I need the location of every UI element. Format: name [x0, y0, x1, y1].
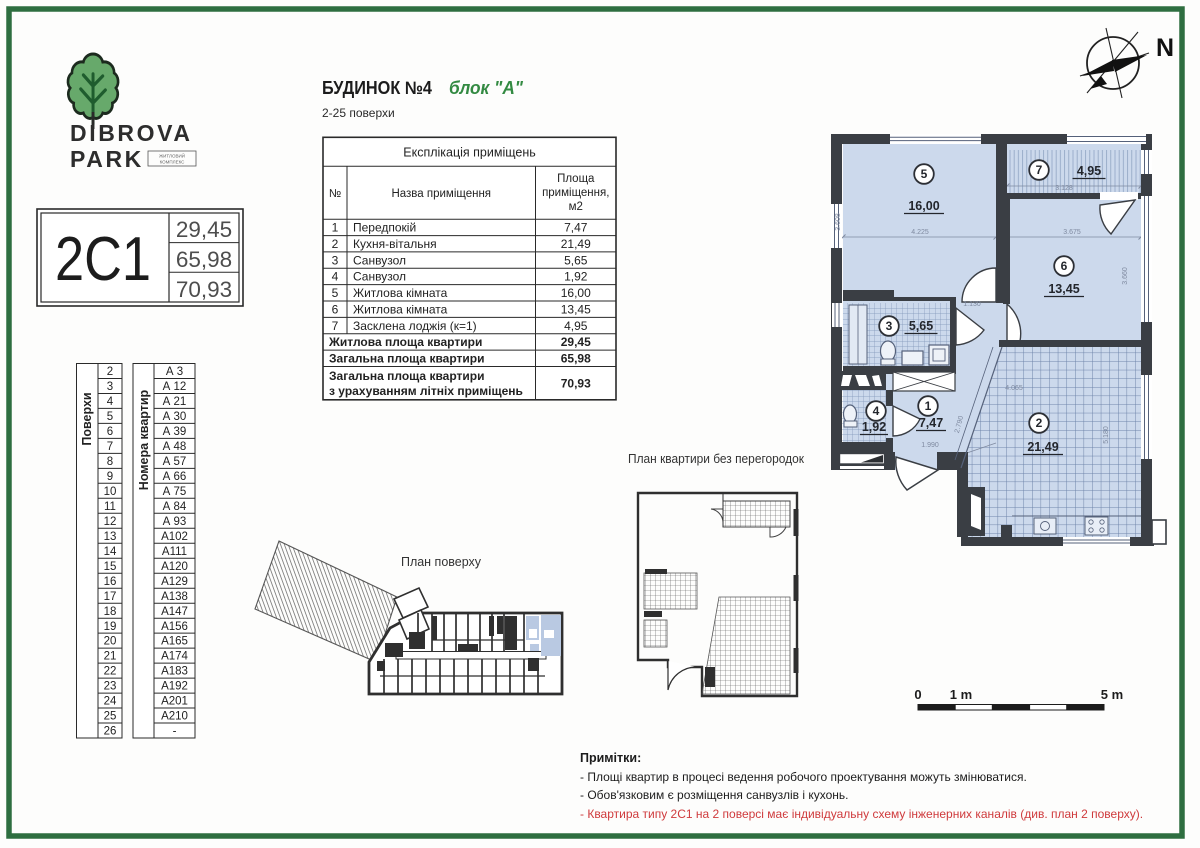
svg-text:1: 1 — [332, 221, 339, 235]
svg-text:5,65: 5,65 — [564, 253, 588, 267]
svg-text:Засклена лоджія (к=1): Засклена лоджія (к=1) — [353, 319, 477, 333]
svg-text:1,92: 1,92 — [862, 420, 886, 434]
svg-text:Експлікація приміщень: Експлікація приміщень — [403, 145, 536, 159]
svg-text:19: 19 — [104, 621, 117, 633]
svg-text:1 m: 1 m — [950, 687, 972, 702]
svg-text:А 12: А 12 — [163, 381, 187, 393]
svg-text:DIBROVA: DIBROVA — [70, 120, 193, 146]
svg-text:7: 7 — [107, 441, 113, 453]
svg-text:Кухня-вітальня: Кухня-вітальня — [353, 237, 437, 251]
svg-text:5.180: 5.180 — [1103, 426, 1110, 444]
svg-text:Номера квартир: Номера квартир — [137, 389, 151, 490]
svg-text:21,49: 21,49 — [561, 237, 591, 251]
svg-text:N: N — [1156, 34, 1174, 62]
svg-text:План квартири без перегородок: План квартири без перегородок — [628, 451, 804, 466]
svg-text:Поверхи: Поверхи — [80, 392, 94, 445]
svg-text:7: 7 — [332, 319, 339, 333]
svg-text:16: 16 — [104, 576, 117, 588]
svg-text:4,95: 4,95 — [564, 319, 588, 333]
svg-text:А 39: А 39 — [163, 426, 187, 438]
svg-text:А 3: А 3 — [166, 366, 183, 378]
svg-text:А 75: А 75 — [163, 486, 187, 498]
svg-text:А120: А120 — [161, 561, 188, 573]
svg-text:А165: А165 — [161, 636, 188, 648]
svg-text:3: 3 — [886, 319, 893, 333]
svg-text:20: 20 — [104, 636, 117, 648]
svg-text:А129: А129 — [161, 576, 188, 588]
svg-text:13: 13 — [104, 531, 117, 543]
svg-text:-: - — [173, 726, 177, 738]
svg-text:2: 2 — [1036, 416, 1043, 430]
svg-text:65,98: 65,98 — [561, 352, 591, 366]
svg-text:13,45: 13,45 — [561, 302, 591, 316]
svg-text:№: № — [329, 188, 341, 200]
svg-text:1: 1 — [925, 399, 932, 413]
svg-text:Загальна площа квартири: Загальна площа квартири — [329, 369, 484, 383]
svg-text:3.128: 3.128 — [1055, 185, 1073, 192]
svg-text:КОМПЛЕКС: КОМПЛЕКС — [160, 160, 186, 165]
svg-text:м2: м2 — [569, 201, 583, 213]
svg-text:29,45: 29,45 — [176, 217, 232, 242]
svg-text:1,92: 1,92 — [564, 270, 588, 284]
svg-text:4.225: 4.225 — [911, 229, 929, 236]
svg-text:БУДИНОК №4: БУДИНОК №4 — [322, 78, 432, 98]
svg-text:7,47: 7,47 — [919, 416, 943, 430]
svg-text:16,00: 16,00 — [908, 199, 939, 213]
svg-text:2-25 поверхи: 2-25 поверхи — [322, 106, 395, 120]
svg-text:25: 25 — [104, 711, 117, 723]
svg-text:А 84: А 84 — [163, 501, 187, 513]
svg-text:6: 6 — [107, 426, 113, 438]
svg-text:23: 23 — [104, 681, 117, 693]
svg-text:70,93: 70,93 — [561, 377, 591, 391]
svg-text:17: 17 — [104, 591, 117, 603]
svg-text:11: 11 — [104, 501, 116, 513]
svg-text:План поверху: План поверху — [401, 555, 482, 569]
svg-text:А 30: А 30 — [163, 411, 187, 423]
svg-text:4,95: 4,95 — [1077, 164, 1101, 178]
svg-text:6: 6 — [1061, 259, 1068, 273]
svg-text:1.990: 1.990 — [921, 442, 939, 449]
svg-text:А138: А138 — [161, 591, 188, 603]
svg-text:2: 2 — [107, 366, 113, 378]
svg-text:12: 12 — [104, 516, 117, 528]
svg-text:21,49: 21,49 — [1027, 440, 1058, 454]
svg-text:16,00: 16,00 — [561, 286, 591, 300]
svg-text:Передпокій: Передпокій — [353, 221, 416, 235]
svg-text:3.675: 3.675 — [1063, 229, 1081, 236]
svg-text:1.130: 1.130 — [963, 301, 981, 308]
svg-text:3.608: 3.608 — [835, 213, 842, 231]
svg-text:3: 3 — [107, 381, 113, 393]
svg-text:5 m: 5 m — [1101, 687, 1123, 702]
svg-text:А 48: А 48 — [163, 441, 187, 453]
svg-text:Житлова кімната: Житлова кімната — [353, 302, 448, 316]
svg-text:- Обов'язковим є розміщення са: - Обов'язковим є розміщення санвузлів і … — [580, 788, 848, 802]
svg-text:ЖИТЛОВИЙ: ЖИТЛОВИЙ — [159, 152, 185, 159]
svg-text:21: 21 — [104, 651, 117, 663]
svg-text:4: 4 — [873, 404, 880, 418]
svg-text:А183: А183 — [161, 666, 188, 678]
svg-text:9: 9 — [107, 471, 113, 483]
svg-text:18: 18 — [104, 606, 117, 618]
svg-text:А111: А111 — [162, 546, 187, 558]
svg-text:А 66: А 66 — [163, 471, 187, 483]
svg-text:65,98: 65,98 — [176, 247, 232, 272]
svg-text:А192: А192 — [161, 681, 188, 693]
svg-text:3: 3 — [332, 253, 339, 267]
svg-text:0: 0 — [914, 687, 921, 702]
svg-text:22: 22 — [104, 666, 117, 678]
svg-text:24: 24 — [104, 696, 117, 708]
svg-text:А156: А156 — [161, 621, 188, 633]
svg-text:4.065: 4.065 — [1005, 385, 1023, 392]
svg-text:А210: А210 — [161, 711, 188, 723]
svg-text:5: 5 — [332, 286, 339, 300]
svg-text:4: 4 — [332, 270, 339, 284]
svg-text:14: 14 — [104, 546, 117, 558]
svg-text:Примітки:: Примітки: — [580, 751, 641, 765]
svg-text:А 93: А 93 — [163, 516, 187, 528]
svg-text:2С1: 2С1 — [55, 225, 151, 294]
svg-text:А 21: А 21 — [163, 396, 187, 408]
svg-text:29,45: 29,45 — [561, 335, 591, 349]
svg-text:А 57: А 57 — [163, 456, 187, 468]
svg-text:А147: А147 — [161, 606, 188, 618]
svg-text:Житлова кімната: Житлова кімната — [353, 286, 448, 300]
svg-text:4: 4 — [107, 396, 114, 408]
svg-text:А201: А201 — [161, 696, 188, 708]
svg-text:Житлова площа квартири: Житлова площа квартири — [328, 335, 482, 349]
svg-text:6: 6 — [332, 302, 339, 316]
svg-text:5: 5 — [107, 411, 113, 423]
svg-text:приміщення,: приміщення, — [542, 187, 609, 199]
svg-text:3.660: 3.660 — [1122, 267, 1129, 285]
svg-text:26: 26 — [104, 726, 117, 738]
svg-text:7,47: 7,47 — [564, 221, 588, 235]
svg-text:PARK: PARK — [70, 146, 144, 172]
svg-text:Загальна площа квартири: Загальна площа квартири — [329, 352, 484, 366]
svg-text:А174: А174 — [161, 651, 188, 663]
svg-text:Санвузол: Санвузол — [353, 253, 406, 267]
svg-text:Санвузол: Санвузол — [353, 270, 406, 284]
svg-text:5: 5 — [921, 167, 928, 181]
svg-text:Площа: Площа — [557, 173, 595, 185]
svg-text:- Квартира типу 2С1 на 2 повер: - Квартира типу 2С1 на 2 поверсі має інд… — [580, 807, 1143, 821]
svg-text:10: 10 — [104, 486, 117, 498]
svg-text:А102: А102 — [161, 531, 188, 543]
svg-text:13,45: 13,45 — [1048, 282, 1079, 296]
svg-text:- Площі квартир в процесі веде: - Площі квартир в процесі ведення робочо… — [580, 770, 1027, 784]
svg-text:70,93: 70,93 — [176, 277, 232, 302]
svg-text:Назва приміщення: Назва приміщення — [391, 188, 491, 200]
svg-text:7: 7 — [1036, 163, 1043, 177]
svg-text:8: 8 — [107, 456, 113, 468]
svg-text:15: 15 — [104, 561, 117, 573]
svg-text:з урахуванням літніх приміщень: з урахуванням літніх приміщень — [329, 384, 523, 398]
svg-text:5,65: 5,65 — [909, 319, 933, 333]
svg-text:блок "А": блок "А" — [449, 78, 523, 98]
svg-text:2: 2 — [332, 237, 339, 251]
